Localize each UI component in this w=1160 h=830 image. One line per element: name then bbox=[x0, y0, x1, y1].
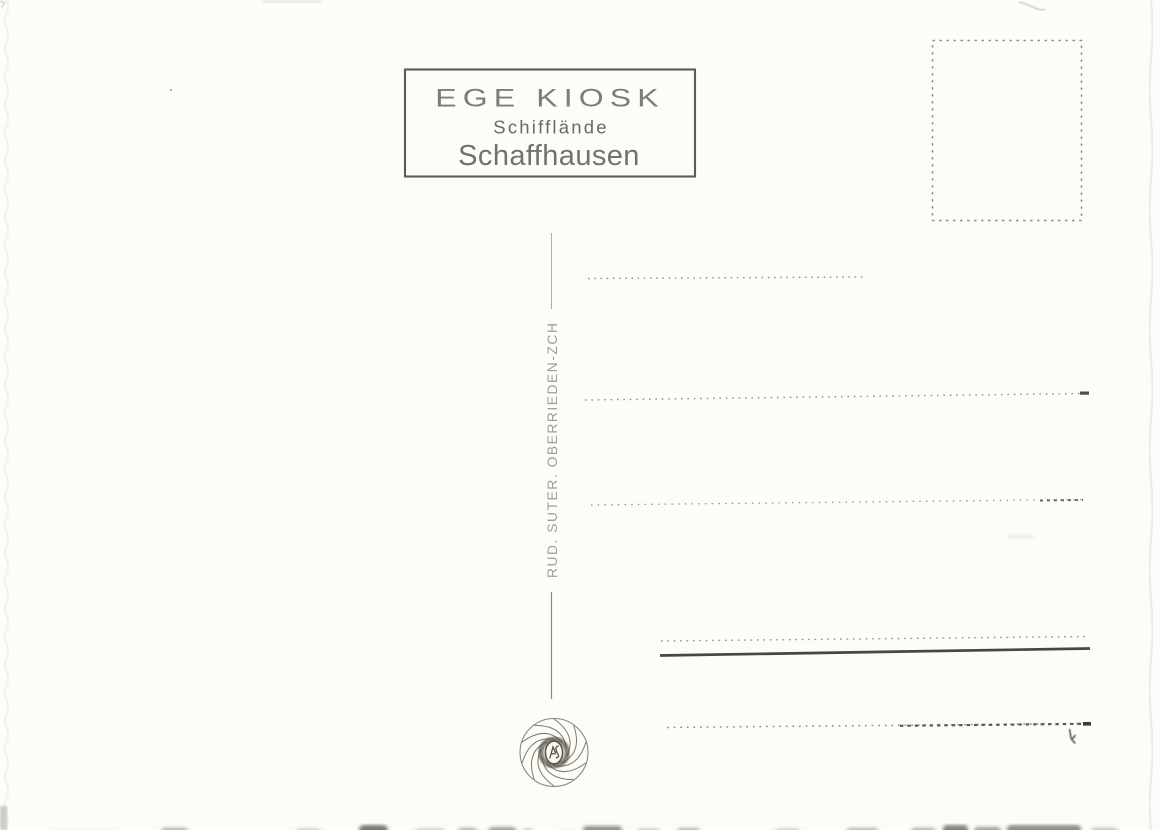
svg-text:Schifflände: Schifflände bbox=[493, 117, 608, 138]
svg-text:RUD. SUTER. OBERRIEDEN-ZCH: RUD. SUTER. OBERRIEDEN-ZCH bbox=[545, 322, 560, 578]
svg-text:Schaffhausen: Schaffhausen bbox=[458, 140, 640, 172]
svg-text:EGE KIOSK: EGE KIOSK bbox=[435, 85, 665, 113]
